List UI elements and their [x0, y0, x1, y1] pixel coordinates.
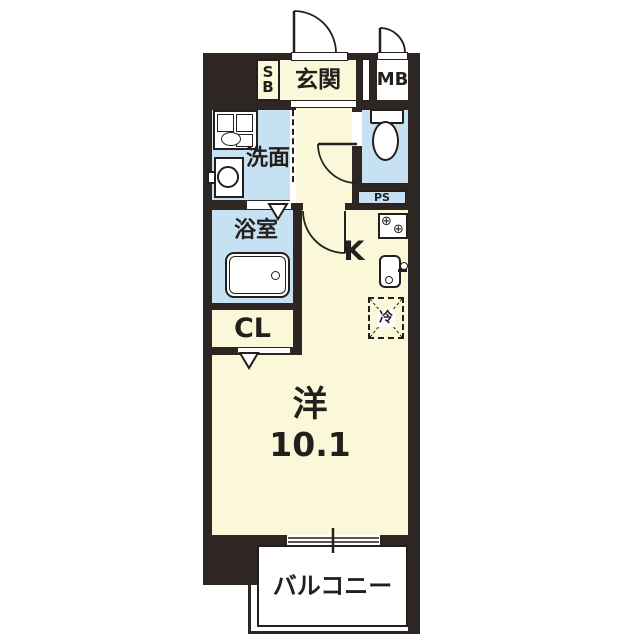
- wall-bottom-left-block: [203, 545, 257, 585]
- balcony-outline-left: [248, 585, 251, 634]
- window-opening: [287, 535, 380, 545]
- pipe-space: PS: [358, 191, 406, 204]
- room-shoe-box: S B: [256, 59, 280, 101]
- washing-machine-tap: [207, 171, 216, 184]
- bath-door-opening: [247, 201, 291, 209]
- kitchen-drain: [385, 276, 393, 284]
- balcony-label-box: バルコニー: [257, 545, 408, 627]
- washroom-label-box: 洗面: [240, 146, 296, 172]
- floorplan-canvas: S B 玄関 MB PS CL バルコニー: [0, 0, 640, 640]
- main-door-opening: [303, 203, 345, 210]
- vanity-basin: [221, 132, 241, 146]
- room-meter-box: MB: [377, 60, 408, 100]
- entrance-label: 玄関: [295, 69, 341, 92]
- meter-box-door-sill: [377, 52, 408, 60]
- western-room-label-box: 洋: [212, 385, 408, 425]
- stove-icon: ⊕ ⊕: [378, 213, 408, 239]
- vanity-cabinet-right: [236, 114, 253, 132]
- toilet-bowl: [372, 121, 399, 161]
- shaft-strip: [362, 59, 370, 101]
- kitchen-label-box: K: [339, 236, 369, 266]
- room-closet: CL: [212, 310, 293, 347]
- western-room-size-label: 10.1: [269, 428, 350, 461]
- stove-burner-1: ⊕: [381, 214, 392, 229]
- shoe-box-label-line2: B: [262, 80, 273, 95]
- meter-box-door-arc-icon: [380, 28, 405, 53]
- entrance-door-arc-icon: [294, 11, 336, 53]
- refrigerator-label-box: 冷: [377, 309, 395, 327]
- western-room-size-box: 10.1: [212, 424, 408, 464]
- washroom-label: 洗面: [246, 148, 290, 170]
- toilet-door-opening: [352, 112, 362, 146]
- kitchen-faucet-knob: [400, 262, 408, 270]
- wall-right-lower: [408, 545, 420, 634]
- bathroom-label: 浴室: [234, 220, 278, 242]
- refrigerator-icon: 冷: [368, 297, 404, 339]
- entrance-door-sill: [291, 52, 348, 61]
- balcony-label: バルコニー: [273, 574, 393, 598]
- vanity-sink-icon: [213, 110, 258, 150]
- stove-burner-2: ⊕: [393, 222, 404, 237]
- bathtub-drain: [271, 271, 280, 280]
- vanity-cabinet-left: [217, 114, 234, 132]
- refrigerator-label: 冷: [379, 311, 393, 325]
- bathtub-icon: [225, 252, 290, 298]
- kitchen-label: K: [344, 238, 365, 265]
- closet-door-opening: [238, 347, 290, 353]
- hallway: [296, 108, 352, 203]
- western-room-label: 洋: [292, 388, 327, 423]
- meter-box-label: MB: [377, 71, 409, 89]
- room-entrance: 玄関: [280, 60, 356, 100]
- bathroom-label-box: 浴室: [224, 218, 288, 244]
- closet-label: CL: [234, 315, 271, 342]
- pipe-space-label: PS: [374, 192, 390, 203]
- entrance-step: [291, 100, 356, 108]
- washing-machine-drum: [217, 166, 239, 188]
- balcony-outline-bottom: [248, 631, 420, 634]
